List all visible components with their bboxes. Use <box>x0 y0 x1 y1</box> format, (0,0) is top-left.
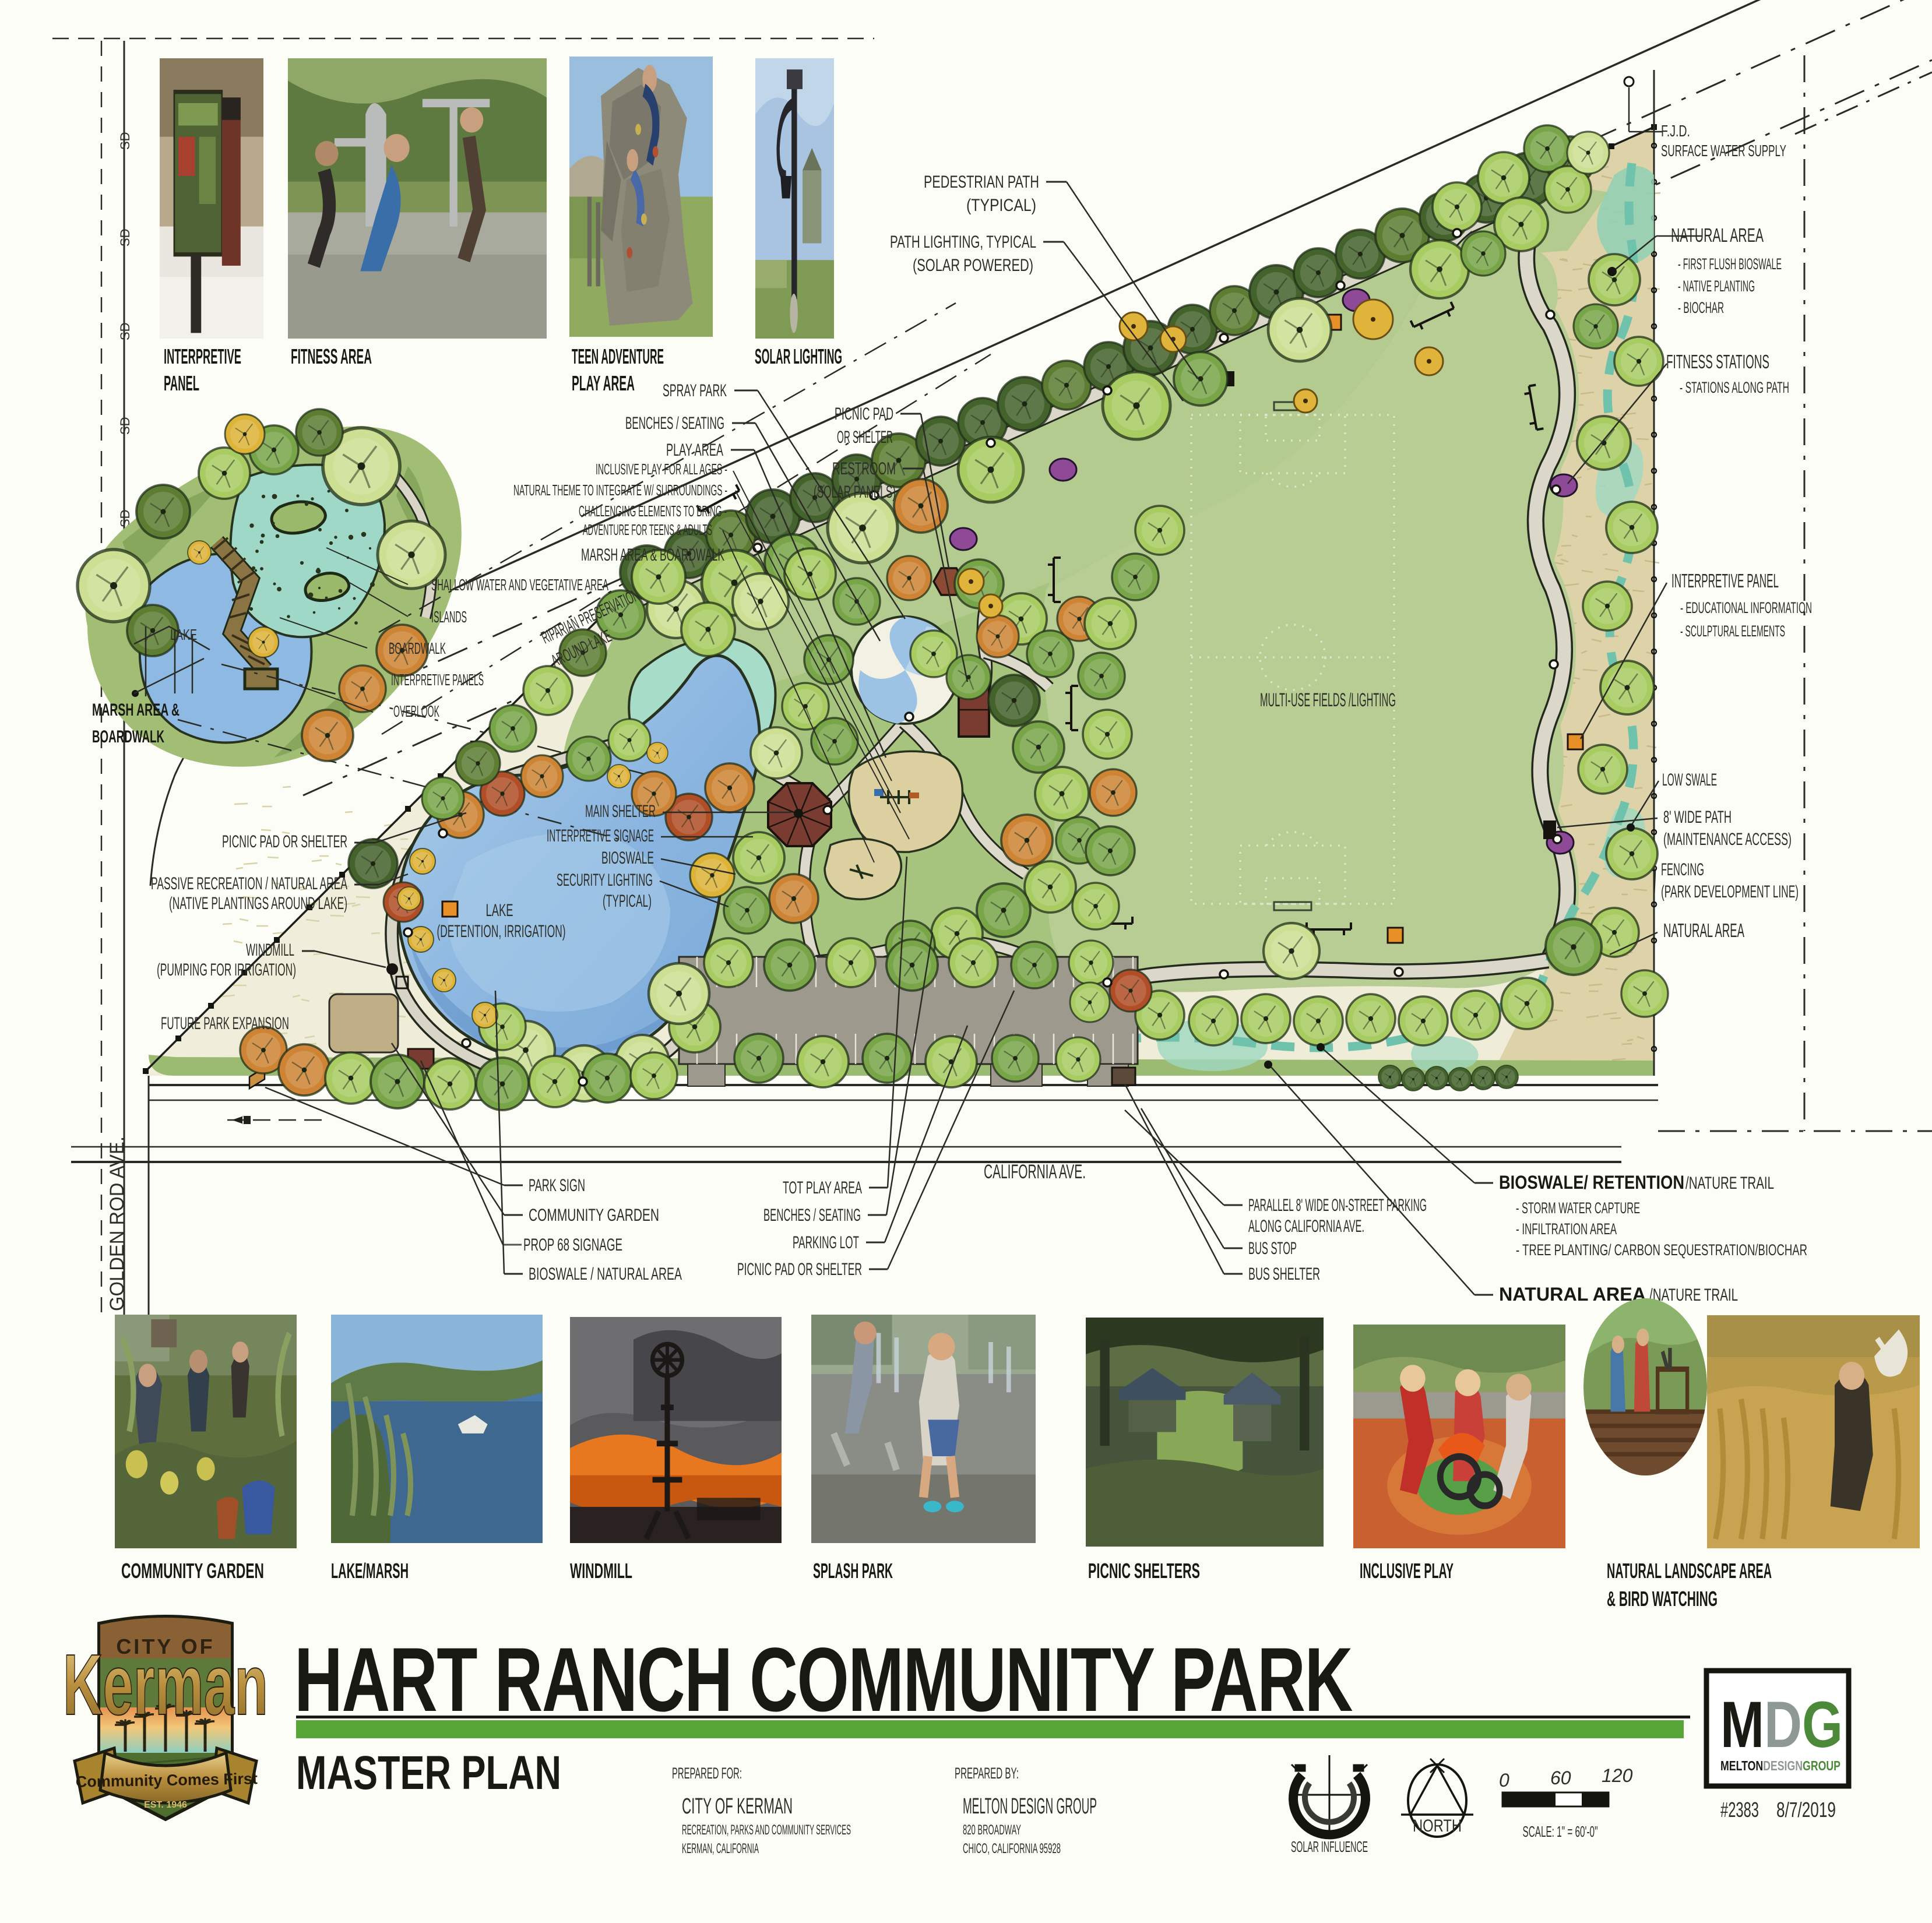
svg-text:PICNIC PAD: PICNIC PAD <box>835 404 893 424</box>
svg-text:HART RANCH COMMUNITY PARK: HART RANCH COMMUNITY PARK <box>294 1629 1353 1731</box>
svg-text:CHALLENGING ELEMENTS TO BRING: CHALLENGING ELEMENTS TO BRING - <box>579 502 727 520</box>
svg-text:0: 0 <box>1499 1770 1509 1791</box>
svg-text:MDG: MDG <box>1720 1688 1843 1761</box>
svg-text:FUTURE PARK EXPANSION: FUTURE PARK EXPANSION <box>161 1014 289 1033</box>
svg-text:SD: SD <box>118 132 132 150</box>
svg-text:PARKING LOT: PARKING LOT <box>793 1233 859 1252</box>
svg-text:PEDESTRIAN PATH: PEDESTRIAN PATH <box>924 172 1039 192</box>
svg-text:WINDMILL: WINDMILL <box>246 941 294 960</box>
svg-text:PREPARED FOR:: PREPARED FOR: <box>672 1764 742 1782</box>
svg-text:NATURAL AREA: NATURAL AREA <box>1499 1284 1646 1305</box>
svg-text:SOLAR INFLUENCE: SOLAR INFLUENCE <box>1291 1838 1368 1855</box>
svg-text:PASSIVE RECREATION / NATURAL A: PASSIVE RECREATION / NATURAL AREA <box>151 874 347 893</box>
svg-text:INTERPRETIVE PANEL: INTERPRETIVE PANEL <box>1671 570 1779 591</box>
svg-text:PLAY AREA: PLAY AREA <box>666 441 723 460</box>
svg-text:MARSH AREA &: MARSH AREA & <box>92 700 180 720</box>
svg-text:PROP 68 SIGNAGE: PROP 68 SIGNAGE <box>523 1235 622 1255</box>
svg-text:SD: SD <box>118 228 132 246</box>
svg-text:PICNIC PAD OR SHELTER: PICNIC PAD OR SHELTER <box>737 1260 862 1279</box>
svg-text:PARK SIGN: PARK SIGN <box>529 1176 585 1195</box>
svg-text:NATURAL AREA: NATURAL AREA <box>1671 224 1764 246</box>
svg-text:ISLANDS: ISLANDS <box>431 608 467 626</box>
svg-text:LAKE: LAKE <box>170 626 197 643</box>
svg-text:EST. 1946: EST. 1946 <box>144 1800 187 1810</box>
svg-text:BIOSWALE: BIOSWALE <box>601 848 654 868</box>
svg-text:SHALLOW WATER AND VEGETATIVE A: SHALLOW WATER AND VEGETATIVE AREA <box>431 576 608 594</box>
svg-text:CHICO, CALIFORNIA 95928: CHICO, CALIFORNIA 95928 <box>963 1841 1061 1857</box>
svg-text:#2383: #2383 <box>1720 1798 1759 1822</box>
svg-text:- NATIVE PLANTING: - NATIVE PLANTING <box>1678 277 1755 295</box>
svg-text:INCLUSIVE PLAY FOR ALL AGES -: INCLUSIVE PLAY FOR ALL AGES - <box>596 460 727 478</box>
svg-text:(PUMPING FOR IRRIGATION): (PUMPING FOR IRRIGATION) <box>157 960 296 980</box>
svg-text:INTERPRETIVE PANELS: INTERPRETIVE PANELS <box>391 671 484 689</box>
svg-text:- SCULPTURAL ELEMENTS: - SCULPTURAL ELEMENTS <box>1680 622 1785 640</box>
svg-text:(NATIVE PLANTINGS AROUND LAKE): (NATIVE PLANTINGS AROUND LAKE) <box>169 894 347 913</box>
svg-text:(MAINTENANCE ACCESS): (MAINTENANCE ACCESS) <box>1663 830 1792 849</box>
svg-text:NATURAL LANDSCAPE AREA: NATURAL LANDSCAPE AREA <box>1607 1559 1772 1583</box>
svg-text:FITNESS STATIONS: FITNESS STATIONS <box>1666 351 1769 372</box>
svg-text:8' WIDE PATH: 8' WIDE PATH <box>1663 808 1732 827</box>
svg-text:SOLAR LIGHTING: SOLAR LIGHTING <box>755 344 842 368</box>
svg-text:LAKE/MARSH: LAKE/MARSH <box>331 1559 409 1583</box>
svg-text:SURFACE WATER SUPPLY: SURFACE WATER SUPPLY <box>1661 142 1786 160</box>
svg-text:NATURAL THEME TO INTEGRATE W/: NATURAL THEME TO INTEGRATE W/ SURROUNDIN… <box>513 481 727 499</box>
svg-text:PANEL: PANEL <box>164 371 199 395</box>
svg-text:SPLASH PARK: SPLASH PARK <box>813 1559 893 1583</box>
svg-text:MARSH AREA & BOARDWALK: MARSH AREA & BOARDWALK <box>581 545 724 565</box>
svg-text:COMMUNITY GARDEN: COMMUNITY GARDEN <box>529 1206 659 1225</box>
svg-text:PATH LIGHTING, TYPICAL: PATH LIGHTING, TYPICAL <box>890 233 1036 252</box>
svg-text:BENCHES / SEATING: BENCHES / SEATING <box>625 414 724 433</box>
svg-text:- FIRST FLUSH BIOSWALE: - FIRST FLUSH BIOSWALE <box>1678 255 1782 273</box>
svg-text:LAKE: LAKE <box>486 901 513 920</box>
svg-text:(SOLAR PANELS): (SOLAR PANELS) <box>814 482 896 502</box>
svg-text:ALONG CALIFORNIA AVE.: ALONG CALIFORNIA AVE. <box>1248 1217 1364 1236</box>
svg-text:SD: SD <box>118 417 132 435</box>
svg-text:(PARK DEVELOPMENT LINE): (PARK DEVELOPMENT LINE) <box>1661 882 1799 901</box>
svg-text:(TYPICAL): (TYPICAL) <box>966 196 1036 215</box>
svg-text:- INFILTRATION AREA: - INFILTRATION AREA <box>1516 1220 1617 1238</box>
svg-text:KERMAN, CALIFORNIA: KERMAN, CALIFORNIA <box>682 1841 759 1857</box>
svg-text:RESTROOM: RESTROOM <box>832 459 896 478</box>
svg-text:60: 60 <box>1550 1767 1571 1788</box>
svg-text:BIOSWALE/ RETENTION: BIOSWALE/ RETENTION <box>1499 1172 1684 1193</box>
svg-text:RECREATION, PARKS AND COMMUNIT: RECREATION, PARKS AND COMMUNITY SERVICES <box>682 1822 851 1838</box>
svg-text:MELTON DESIGN GROUP: MELTON DESIGN GROUP <box>963 1794 1097 1819</box>
svg-text:BENCHES / SEATING: BENCHES / SEATING <box>763 1206 861 1225</box>
svg-text:PICNIC PAD OR SHELTER: PICNIC PAD OR SHELTER <box>222 832 347 851</box>
svg-text:8/7/2019: 8/7/2019 <box>1776 1798 1836 1822</box>
svg-text:NORTH: NORTH <box>1413 1816 1462 1836</box>
svg-text:CITY OF KERMAN: CITY OF KERMAN <box>682 1794 793 1819</box>
svg-text:- STATIONS ALONG PATH: - STATIONS ALONG PATH <box>1680 379 1789 396</box>
svg-text:SPRAY PARK: SPRAY PARK <box>663 381 727 400</box>
svg-text:SCALE: 1" = 60'-0": SCALE: 1" = 60'-0" <box>1523 1823 1598 1840</box>
svg-text:INTERPRETIVE: INTERPRETIVE <box>164 344 241 368</box>
svg-text:- TREE PLANTING/ CARBON SEQUES: - TREE PLANTING/ CARBON SEQUESTRATION/BI… <box>1516 1241 1807 1259</box>
svg-text:MULTI-USE FIELDS /LIGHTING: MULTI-USE FIELDS /LIGHTING <box>1260 689 1396 710</box>
svg-text:NATURAL AREA: NATURAL AREA <box>1663 920 1744 941</box>
svg-text:TOT PLAY AREA: TOT PLAY AREA <box>783 1178 862 1198</box>
svg-text:MASTER PLAN: MASTER PLAN <box>296 1746 561 1799</box>
svg-text:INCLUSIVE PLAY: INCLUSIVE PLAY <box>1360 1559 1454 1583</box>
svg-text:SD: SD <box>118 322 132 340</box>
svg-text:SECURITY LIGHTING: SECURITY LIGHTING <box>557 871 653 890</box>
svg-text:PLAY AREA: PLAY AREA <box>572 371 635 395</box>
svg-text:BOARDWALK: BOARDWALK <box>92 727 164 746</box>
svg-text:- BIOCHAR: - BIOCHAR <box>1678 299 1724 316</box>
svg-text:- STORM WATER CAPTURE: - STORM WATER CAPTURE <box>1516 1199 1640 1217</box>
svg-text:Kerman: Kerman <box>63 1637 268 1733</box>
svg-text:PREPARED BY:: PREPARED BY: <box>955 1764 1019 1782</box>
svg-text:120: 120 <box>1602 1765 1633 1786</box>
svg-text:COMMUNITY GARDEN: COMMUNITY GARDEN <box>121 1559 264 1583</box>
svg-text:/NATURE TRAIL: /NATURE TRAIL <box>1649 1285 1738 1305</box>
svg-text:Community Comes First: Community Comes First <box>76 1770 258 1790</box>
svg-text:INTERPRETIVE SIGNAGE: INTERPRETIVE SIGNAGE <box>547 826 654 846</box>
svg-text:820 BROADWAY: 820 BROADWAY <box>963 1822 1021 1838</box>
svg-text:- EDUCATIONAL INFORMATION: - EDUCATIONAL INFORMATION <box>1680 599 1812 617</box>
svg-text:BUS SHELTER: BUS SHELTER <box>1248 1265 1320 1284</box>
svg-text:BUS STOP: BUS STOP <box>1248 1239 1297 1258</box>
svg-text:/NATURE TRAIL: /NATURE TRAIL <box>1685 1174 1774 1193</box>
svg-text:LOW SWALE: LOW SWALE <box>1662 770 1717 790</box>
svg-text:GOLDEN ROD AVE.: GOLDEN ROD AVE. <box>106 1136 128 1311</box>
svg-text:MAIN SHELTER: MAIN SHELTER <box>585 802 656 821</box>
svg-text:(TYPICAL): (TYPICAL) <box>603 892 652 911</box>
svg-text:FITNESS AREA: FITNESS AREA <box>291 344 372 368</box>
svg-text:OVERLOOK: OVERLOOK <box>393 702 439 720</box>
svg-text:WINDMILL: WINDMILL <box>570 1559 632 1583</box>
svg-text:ADVENTURE FOR TEENS & ADULTS: ADVENTURE FOR TEENS & ADULTS <box>583 521 712 538</box>
svg-text:PICNIC SHELTERS: PICNIC SHELTERS <box>1088 1559 1200 1583</box>
svg-text:OR SHELTER: OR SHELTER <box>837 428 893 447</box>
svg-text:TEEN ADVENTURE: TEEN ADVENTURE <box>572 344 664 368</box>
svg-text:CALIFORNIA AVE.: CALIFORNIA AVE. <box>984 1161 1086 1183</box>
svg-text:FENCING: FENCING <box>1661 860 1704 879</box>
svg-text:BIOSWALE / NATURAL AREA: BIOSWALE / NATURAL AREA <box>529 1265 682 1284</box>
svg-text:(DETENTION, IRRIGATION): (DETENTION, IRRIGATION) <box>437 922 566 941</box>
svg-text:(SOLAR POWERED): (SOLAR POWERED) <box>913 256 1033 275</box>
svg-text:MELTONDESIGNGROUP: MELTONDESIGNGROUP <box>1720 1758 1840 1773</box>
svg-text:BOARDWALK: BOARDWALK <box>389 639 446 657</box>
svg-text:F.J.D.: F.J.D. <box>1661 122 1690 140</box>
svg-text:& BIRD WATCHING: & BIRD WATCHING <box>1607 1587 1718 1611</box>
